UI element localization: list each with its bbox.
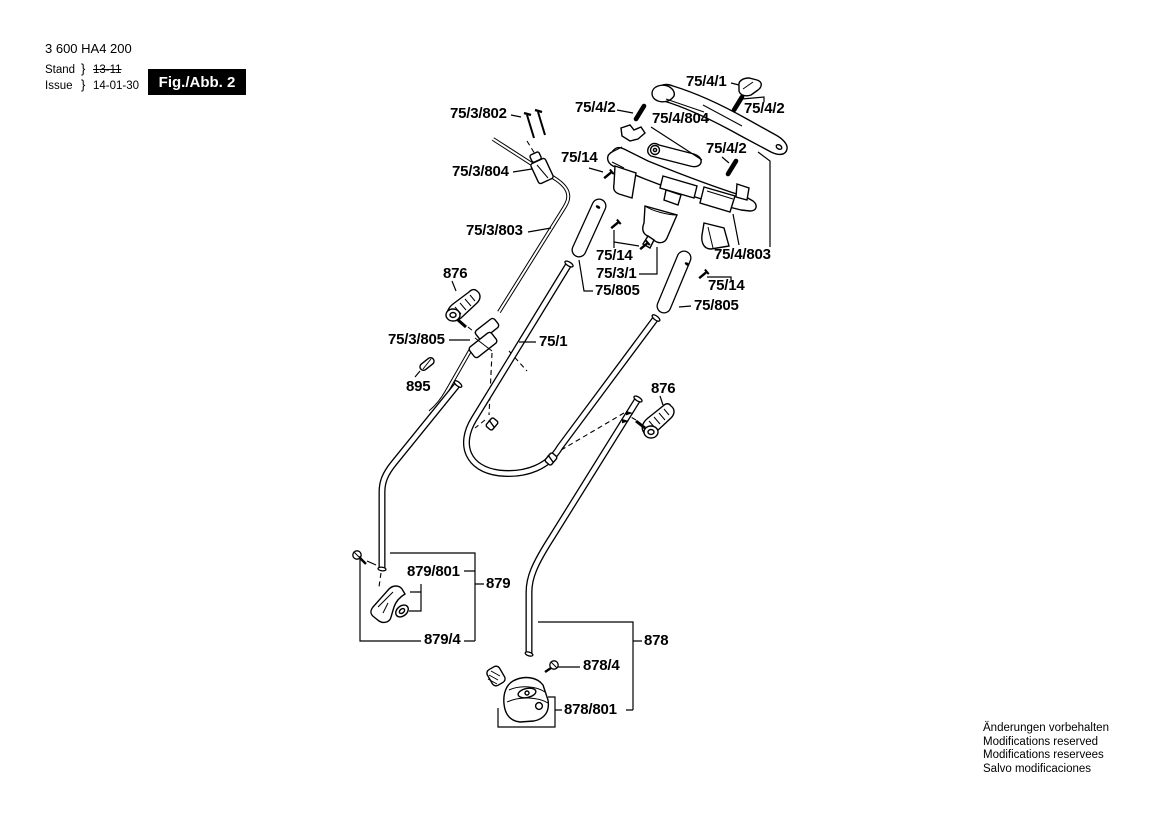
part-label-75-3-805: 75/3/805 (388, 332, 445, 347)
part-label-75-4-2-c: 75/4/2 (706, 141, 747, 156)
cap-75-4-1 (739, 78, 761, 96)
part-label-75-805-b: 75/805 (694, 298, 739, 313)
part-label-895: 895 (406, 379, 430, 394)
note-line-fr: Modifications reservees (983, 749, 1109, 763)
wing-bolt-876-right (636, 404, 674, 438)
note-line-en: Modifications reserved (983, 736, 1109, 750)
part-label-75-4-804: 75/4/804 (652, 111, 709, 126)
part-label-878: 878 (644, 633, 668, 648)
lower-right-tube-878 (525, 395, 643, 657)
part-label-879-4: 879/4 (424, 632, 461, 647)
clamp-75-3-804 (529, 151, 554, 184)
part-label-75-4-2-b: 75/4/2 (744, 101, 785, 116)
part-label-75-14-a: 75/14 (561, 150, 598, 165)
part-label-75-805-a: 75/805 (595, 283, 640, 298)
part-label-75-1: 75/1 (539, 334, 567, 349)
parts-diagram-page: 3 600 HA4 200 Stand } 13-11 Issue } 14-0… (0, 0, 1169, 826)
issue-label: Issue (45, 80, 81, 94)
barrel-nuts (485, 417, 557, 466)
pin-895 (419, 356, 436, 371)
part-label-75-4-2-a: 75/4/2 (575, 100, 616, 115)
screw-878-4 (545, 661, 558, 672)
part-label-878-4: 878/4 (583, 658, 620, 673)
lower-left-tube-879 (378, 380, 463, 572)
part-label-75-4-1: 75/4/1 (686, 74, 727, 89)
part-label-878-801: 878/801 (564, 702, 617, 717)
brace-glyph: } (81, 62, 93, 76)
part-label-876-a: 876 (443, 266, 467, 281)
part-number: 3 600 HA4 200 (45, 41, 132, 56)
stand-value: 13-11 (93, 64, 122, 78)
part-label-75-3-804: 75/3/804 (452, 164, 509, 179)
part-label-876-b: 876 (651, 381, 675, 396)
part-label-879: 879 (486, 576, 510, 591)
bracket-879-801 (371, 586, 411, 622)
mount-878-801 (485, 665, 548, 722)
bolts-75-3-802 (524, 110, 545, 138)
modification-notes: Änderungen vorbehalten Modifications res… (983, 722, 1109, 776)
figure-number-box: Fig./Abb. 2 (148, 69, 246, 95)
part-label-75-3-1: 75/3/1 (596, 266, 637, 281)
part-label-75-4-803: 75/4/803 (714, 247, 771, 262)
label-leader-lines (360, 83, 770, 727)
note-line-de: Änderungen vorbehalten (983, 722, 1109, 736)
brace-glyph: } (81, 78, 93, 92)
issue-value: 14-01-30 (93, 80, 139, 94)
part-label-75-3-802: 75/3/802 (450, 106, 507, 121)
wing-bolt-876-left (446, 290, 480, 327)
grip-75-805-right (664, 258, 690, 306)
revision-block: Stand } 13-11 Issue } 14-01-30 (45, 62, 139, 93)
clip-part (621, 125, 645, 141)
part-label-879-801: 879/801 (407, 564, 460, 579)
note-line-es: Salvo modificaciones (983, 763, 1109, 777)
stand-label: Stand (45, 64, 81, 78)
grip-75-805-left (579, 205, 601, 250)
part-label-75-14-c: 75/14 (708, 278, 745, 293)
lever-75-4-804 (648, 143, 701, 166)
clamp-75-3-805 (468, 317, 500, 358)
part-label-75-14-b: 75/14 (596, 248, 633, 263)
part-label-75-3-803: 75/3/803 (466, 223, 523, 238)
